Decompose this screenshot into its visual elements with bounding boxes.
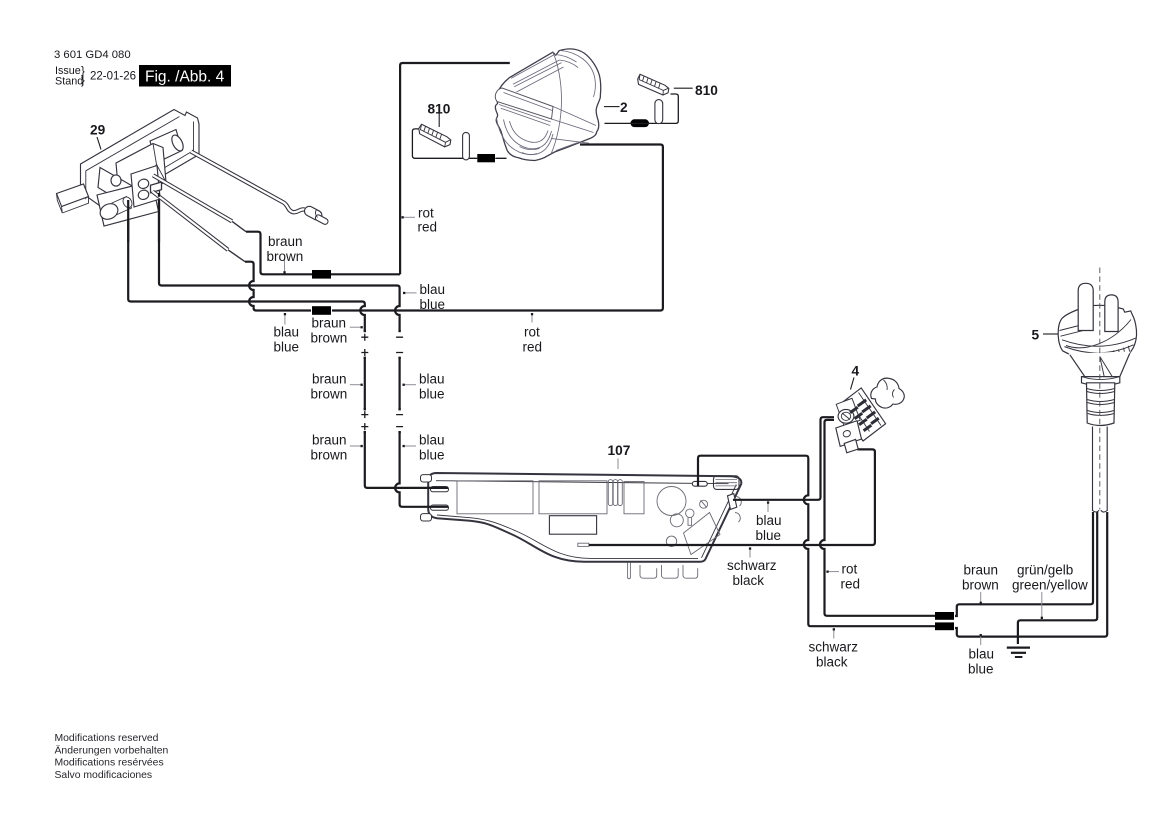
svg-text:blue: blue bbox=[419, 387, 445, 402]
svg-text:schwarz: schwarz bbox=[727, 558, 777, 573]
svg-text:rot: rot bbox=[418, 206, 434, 221]
svg-text:810: 810 bbox=[695, 83, 718, 98]
svg-text:red: red bbox=[523, 340, 543, 355]
svg-text:Fig. /Abb. 4: Fig. /Abb. 4 bbox=[145, 69, 225, 86]
svg-text:2: 2 bbox=[620, 100, 628, 115]
svg-text:brown: brown bbox=[311, 448, 348, 463]
svg-text:107: 107 bbox=[608, 443, 631, 458]
svg-text:blue: blue bbox=[420, 297, 446, 312]
svg-text:blau: blau bbox=[756, 513, 782, 528]
svg-text:black: black bbox=[816, 655, 848, 670]
svg-text:brown: brown bbox=[311, 387, 348, 402]
svg-text:4: 4 bbox=[852, 364, 860, 379]
svg-text:blau: blau bbox=[420, 282, 446, 297]
svg-text:braun: braun bbox=[312, 372, 347, 387]
svg-text:red: red bbox=[418, 220, 438, 235]
svg-text:black: black bbox=[733, 573, 765, 588]
svg-text:brown: brown bbox=[267, 249, 304, 264]
svg-text:29: 29 bbox=[90, 123, 106, 138]
svg-text:blau: blau bbox=[419, 372, 445, 387]
svg-text:rot: rot bbox=[524, 325, 540, 340]
svg-text:blau: blau bbox=[969, 647, 995, 662]
svg-text:rot: rot bbox=[842, 562, 858, 577]
svg-text:Modifications resérvées: Modifications resérvées bbox=[55, 758, 164, 769]
svg-text:braun: braun bbox=[312, 316, 347, 331]
svg-text:blau: blau bbox=[274, 325, 300, 340]
svg-text:blue: blue bbox=[968, 662, 994, 677]
svg-text:22-01-26: 22-01-26 bbox=[90, 71, 136, 83]
svg-text:blue: blue bbox=[756, 528, 782, 543]
svg-text:green/yellow: green/yellow bbox=[1012, 578, 1088, 593]
svg-text:Stand: Stand bbox=[55, 76, 83, 88]
svg-text:grün/gelb: grün/gelb bbox=[1017, 563, 1073, 578]
svg-text:5: 5 bbox=[1032, 328, 1040, 343]
svg-text:braun: braun bbox=[312, 433, 347, 448]
svg-text:blue: blue bbox=[274, 340, 300, 355]
svg-text:3 601 GD4 080: 3 601 GD4 080 bbox=[54, 49, 131, 61]
svg-text:Salvo modificaciones: Salvo modificaciones bbox=[55, 770, 153, 781]
svg-text:red: red bbox=[841, 577, 861, 592]
svg-text:}: } bbox=[81, 75, 85, 87]
svg-text:Modifications reserved: Modifications reserved bbox=[55, 733, 159, 744]
svg-text:brown: brown bbox=[962, 578, 999, 593]
svg-text:schwarz: schwarz bbox=[809, 640, 859, 655]
svg-text:braun: braun bbox=[964, 563, 999, 578]
svg-text:braun: braun bbox=[268, 234, 303, 249]
svg-text:blau: blau bbox=[419, 433, 445, 448]
svg-text:brown: brown bbox=[311, 331, 348, 346]
svg-text:blue: blue bbox=[419, 448, 445, 463]
svg-text:Änderungen vorbehalten: Änderungen vorbehalten bbox=[55, 744, 169, 756]
